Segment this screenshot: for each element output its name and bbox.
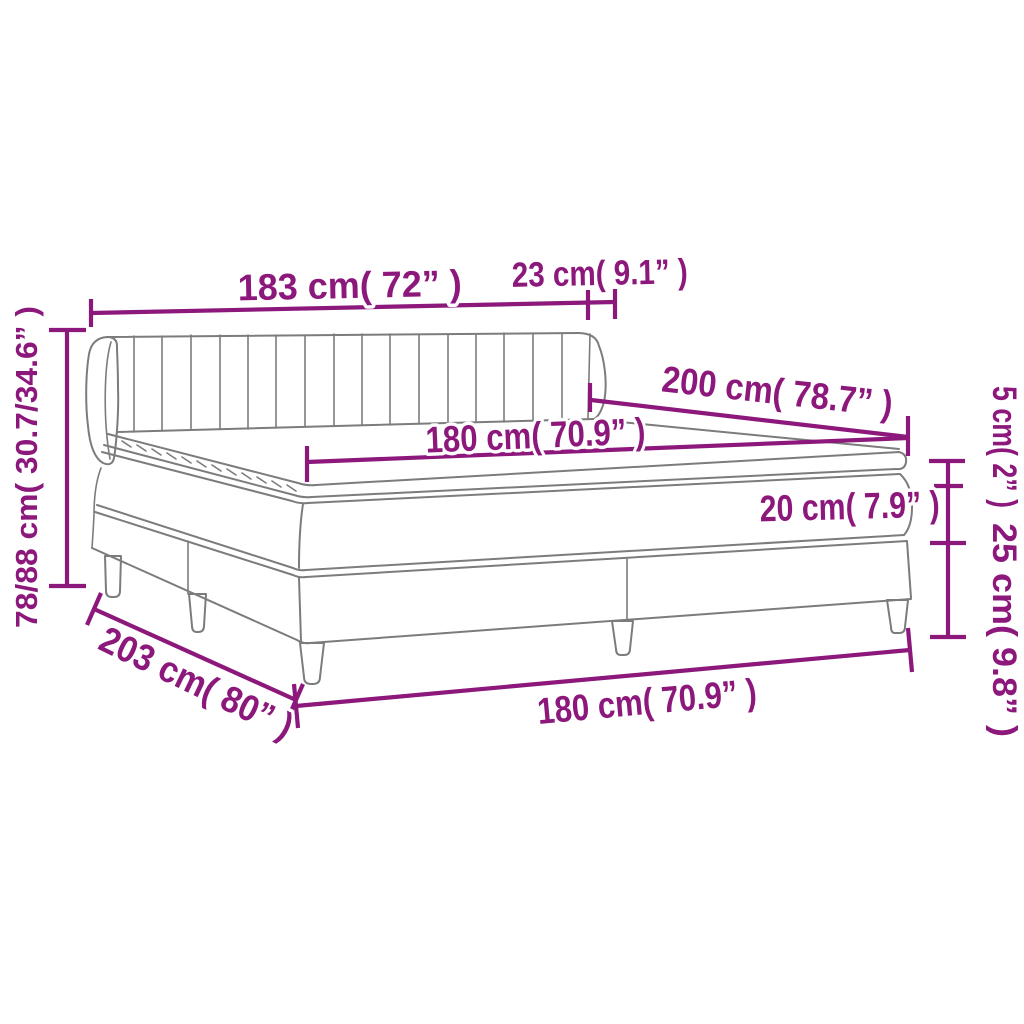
label-bed-length: 200 cm( 78.7” ) <box>660 358 895 424</box>
leg-front-mid <box>612 621 633 655</box>
label-bed-depth: 203 cm( 80” ) <box>93 619 300 747</box>
label-headboard-width: 183 cm( 72” ) <box>237 263 462 309</box>
leg-side-mid <box>189 594 206 632</box>
label-total-height: 78/88 cm( 30.7/34.6” ) <box>9 306 44 628</box>
base-front-corner <box>299 578 301 641</box>
label-mattress-width: 180 cm( 70.9” ) <box>425 410 647 460</box>
label-base-height: 25 cm( 9.8” ) <box>985 523 1023 737</box>
label-headboard-depth: 23 cm( 9.1” ) <box>511 252 688 295</box>
headboard-outline <box>108 333 606 419</box>
label-mattress-height: 20 cm( 7.9” ) <box>759 484 940 530</box>
diagram-canvas: 183 cm( 72” ) 23 cm( 9.1” ) 200 cm( 78.7… <box>0 0 1024 1024</box>
headboard-wing <box>86 337 118 464</box>
leg-side-head <box>105 556 121 597</box>
base-head-edge <box>92 468 101 548</box>
base-bottom-edge <box>92 548 911 643</box>
dim-total-height <box>49 330 86 586</box>
leg-front-right <box>887 600 908 633</box>
topper-seam-hatches <box>122 441 296 491</box>
mattress-front-corner <box>299 504 303 568</box>
leg-front-left <box>300 643 324 684</box>
dimension-labels: 183 cm( 72” ) 23 cm( 9.1” ) 200 cm( 78.7… <box>9 252 1023 747</box>
bed-legs <box>105 556 908 684</box>
label-topper-height: 5 cm( 2” ) <box>985 386 1023 508</box>
headboard-wing-crease <box>105 342 111 459</box>
bed-dimension-diagram: 183 cm( 72” ) 23 cm( 9.1” ) 200 cm( 78.7… <box>0 0 1024 1024</box>
